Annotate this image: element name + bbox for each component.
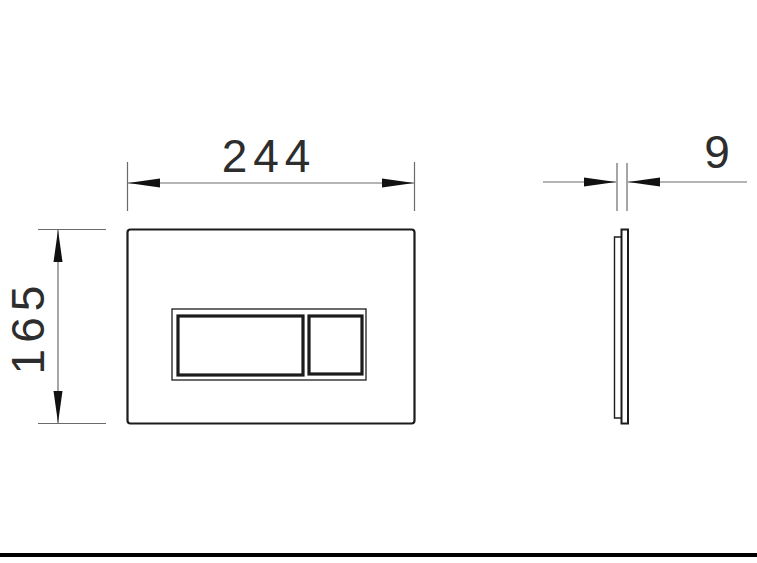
- side-profile-face: [622, 230, 629, 424]
- arrowhead-up-icon: [54, 230, 63, 262]
- height-dimension: 165: [2, 230, 106, 424]
- drawing-canvas: 244 165 9: [0, 0, 757, 563]
- flush-button-large: [178, 316, 303, 375]
- footer-bar: [0, 553, 757, 557]
- technical-drawing: 244 165 9: [0, 0, 757, 563]
- thickness-dimension-label: 9: [704, 126, 730, 178]
- arrowhead-right-icon: [382, 179, 414, 188]
- thickness-dimension: 9: [543, 126, 747, 211]
- flush-button-small: [309, 316, 362, 374]
- plate-outline: [128, 230, 415, 424]
- width-dimension: 244: [128, 130, 415, 211]
- arrowhead-inward-left-icon: [628, 178, 660, 187]
- side-profile-back-lip: [615, 237, 622, 418]
- side-view: [615, 230, 629, 424]
- width-dimension-label: 244: [222, 130, 317, 182]
- arrowhead-left-icon: [128, 179, 160, 188]
- arrowhead-inward-right-icon: [584, 178, 616, 187]
- height-dimension-label: 165: [2, 280, 54, 375]
- arrowhead-down-icon: [54, 391, 63, 423]
- front-view: [128, 230, 415, 424]
- button-recess-frame: [172, 309, 366, 380]
